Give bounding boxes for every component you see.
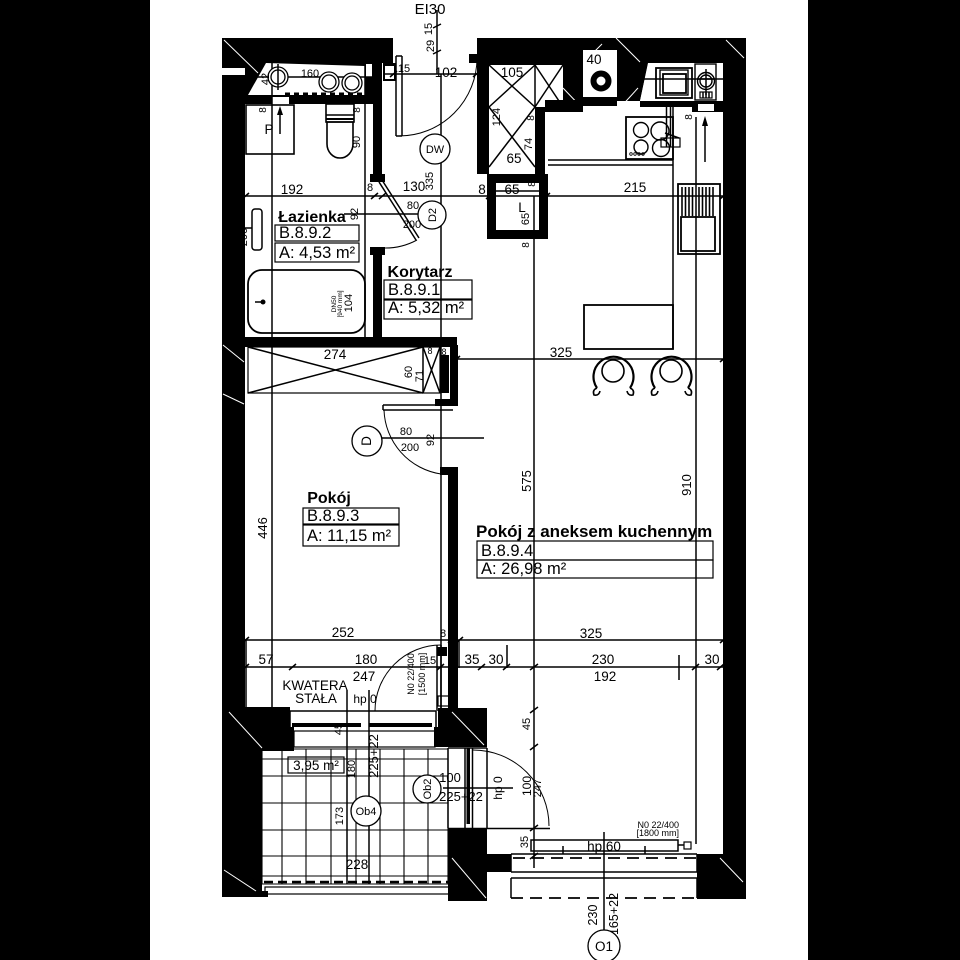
svg-text:92: 92: [349, 208, 361, 220]
svg-text:Korytarz: Korytarz: [388, 264, 453, 281]
svg-text:hp 0: hp 0: [353, 692, 377, 706]
svg-text:35: 35: [519, 836, 531, 848]
svg-text:3,95 m²: 3,95 m²: [293, 758, 339, 773]
svg-text:325: 325: [550, 345, 573, 360]
svg-text:57: 57: [258, 652, 273, 667]
svg-text:A: 26,98 m²: A: 26,98 m²: [481, 560, 567, 578]
svg-text:8: 8: [526, 115, 537, 121]
svg-text:8: 8: [521, 242, 532, 248]
svg-text:29: 29: [425, 40, 437, 52]
svg-text:325: 325: [580, 626, 603, 641]
svg-text:A: 11,15 m²: A: 11,15 m²: [307, 527, 392, 545]
svg-text:8: 8: [352, 107, 363, 113]
svg-text:247: 247: [532, 779, 544, 797]
svg-text:8: 8: [367, 182, 373, 194]
svg-text:104: 104: [343, 294, 355, 312]
svg-text:B.8.9.2: B.8.9.2: [279, 224, 331, 242]
svg-text:8: 8: [478, 182, 486, 197]
svg-text:A: 4,53 m²: A: 4,53 m²: [279, 244, 356, 262]
svg-text:165+22: 165+22: [607, 893, 621, 935]
svg-text:Pokój z aneksem kuchennym: Pokój z aneksem kuchennym: [476, 522, 712, 541]
svg-text:124: 124: [491, 108, 503, 126]
svg-text:215: 215: [624, 180, 647, 195]
svg-text:40: 40: [586, 52, 601, 67]
svg-text:228: 228: [346, 857, 369, 872]
svg-text:42: 42: [260, 73, 272, 85]
svg-text:225+22: 225+22: [366, 734, 381, 778]
svg-text:225+22: 225+22: [439, 789, 483, 804]
svg-text:80: 80: [400, 426, 412, 438]
svg-text:200: 200: [403, 219, 421, 231]
svg-text:hp 0: hp 0: [491, 776, 505, 800]
svg-text:A: 5,32 m²: A: 5,32 m²: [388, 299, 465, 317]
svg-text:92: 92: [425, 434, 437, 446]
svg-text:EI30: EI30: [415, 1, 446, 18]
svg-text:D: D: [359, 436, 374, 446]
svg-text:8: 8: [427, 346, 432, 356]
svg-text:230: 230: [592, 652, 615, 667]
svg-text:180: 180: [355, 652, 378, 667]
svg-text:Ob2: Ob2: [422, 779, 434, 800]
svg-text:200: 200: [401, 442, 419, 454]
svg-text:130: 130: [403, 179, 426, 194]
svg-text:71: 71: [414, 370, 426, 382]
svg-text:910: 910: [679, 474, 694, 496]
svg-text:Pokój: Pokój: [307, 490, 351, 507]
svg-text:8: 8: [684, 114, 695, 120]
svg-text:[1500 mm]: [1500 mm]: [417, 653, 427, 696]
svg-text:8: 8: [440, 628, 446, 640]
svg-text:65: 65: [506, 151, 521, 166]
svg-text:192: 192: [281, 182, 304, 197]
svg-text:247: 247: [353, 669, 376, 684]
svg-text:P: P: [264, 122, 273, 137]
svg-text:105: 105: [501, 65, 524, 80]
svg-text:15: 15: [398, 63, 410, 75]
svg-text:160: 160: [301, 68, 319, 80]
svg-text:173: 173: [334, 807, 346, 825]
svg-text:446: 446: [255, 517, 270, 539]
svg-text:8: 8: [258, 107, 269, 113]
svg-text:B.8.9.4: B.8.9.4: [481, 542, 533, 560]
svg-text:35: 35: [464, 652, 479, 667]
svg-text:30: 30: [488, 652, 503, 667]
svg-text:575: 575: [519, 470, 534, 492]
svg-text:L: L: [518, 200, 526, 215]
svg-text:74: 74: [523, 138, 535, 150]
svg-text:B.8.9.3: B.8.9.3: [307, 507, 359, 525]
svg-text:hp 60: hp 60: [587, 839, 621, 854]
svg-text:274: 274: [324, 347, 347, 362]
svg-text:[1800 mm]: [1800 mm]: [636, 828, 679, 838]
svg-text:252: 252: [332, 625, 355, 640]
svg-text:8: 8: [527, 181, 538, 187]
svg-text:Ob4: Ob4: [356, 806, 377, 818]
svg-text:30: 30: [704, 652, 719, 667]
svg-text:90: 90: [351, 136, 363, 148]
svg-text:335: 335: [424, 172, 436, 190]
svg-text:230: 230: [586, 905, 600, 926]
svg-text:STAŁA: STAŁA: [295, 691, 337, 706]
svg-text:15: 15: [423, 23, 435, 35]
svg-text:45: 45: [333, 723, 345, 735]
svg-text:D2: D2: [427, 208, 439, 222]
svg-text:206: 206: [238, 228, 250, 246]
svg-text:102: 102: [435, 65, 458, 80]
svg-text:B.8.9.1: B.8.9.1: [388, 281, 440, 299]
svg-text:65: 65: [520, 213, 532, 225]
svg-text:N0 22/400: N0 22/400: [406, 653, 416, 695]
svg-text:100: 100: [439, 770, 461, 785]
svg-text:80: 80: [407, 200, 419, 212]
svg-text:192: 192: [594, 669, 617, 684]
svg-text:O1: O1: [595, 939, 613, 954]
svg-text:45: 45: [521, 718, 533, 730]
svg-text:DW: DW: [426, 144, 445, 156]
svg-text:65: 65: [504, 182, 519, 197]
svg-text:180: 180: [346, 760, 358, 778]
svg-text:8: 8: [441, 347, 446, 357]
